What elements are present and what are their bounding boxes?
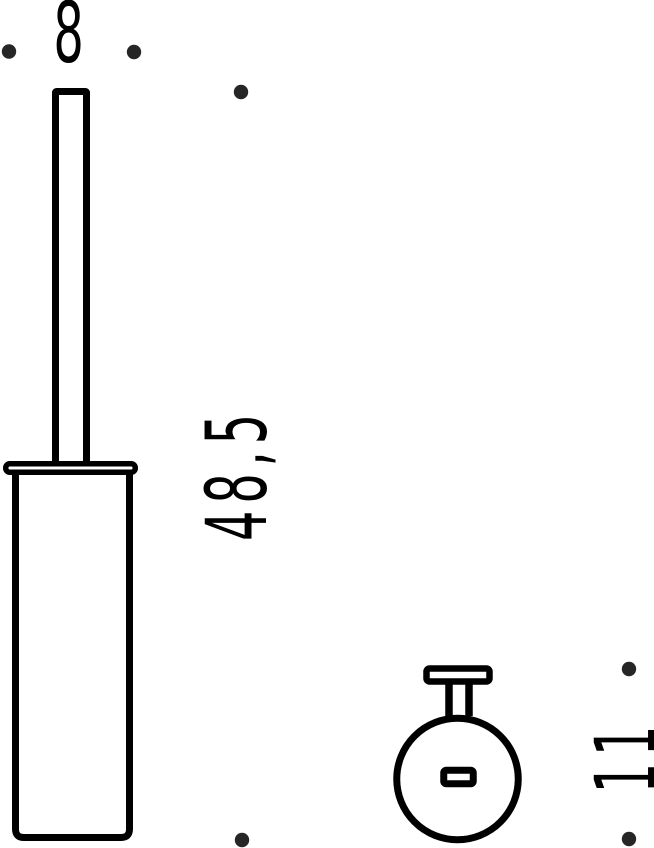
dim-dot-width-left: [2, 44, 16, 58]
dimension-drawing-page: 8 48,5 11: [0, 0, 654, 848]
dimension-drawing: 8 48,5 11: [0, 0, 654, 848]
mount-slot: [444, 770, 474, 784]
wall-plate: [427, 669, 490, 682]
canister-body: [16, 473, 130, 838]
mount-circle: [397, 718, 519, 840]
depth-dimension-label: 11: [579, 719, 654, 794]
dim-dot-height-top: [234, 85, 248, 99]
dim-dot-depth-bottom: [622, 832, 636, 846]
width-dimension-label: 8: [53, 0, 90, 83]
dim-dot-height-bottom: [235, 833, 249, 847]
height-dimension-label: 48,5: [190, 407, 287, 541]
dim-dot-depth-top: [622, 662, 636, 676]
canister-lid: [6, 464, 136, 473]
brush-handle: [56, 92, 87, 470]
dim-dot-width-right: [127, 45, 141, 59]
